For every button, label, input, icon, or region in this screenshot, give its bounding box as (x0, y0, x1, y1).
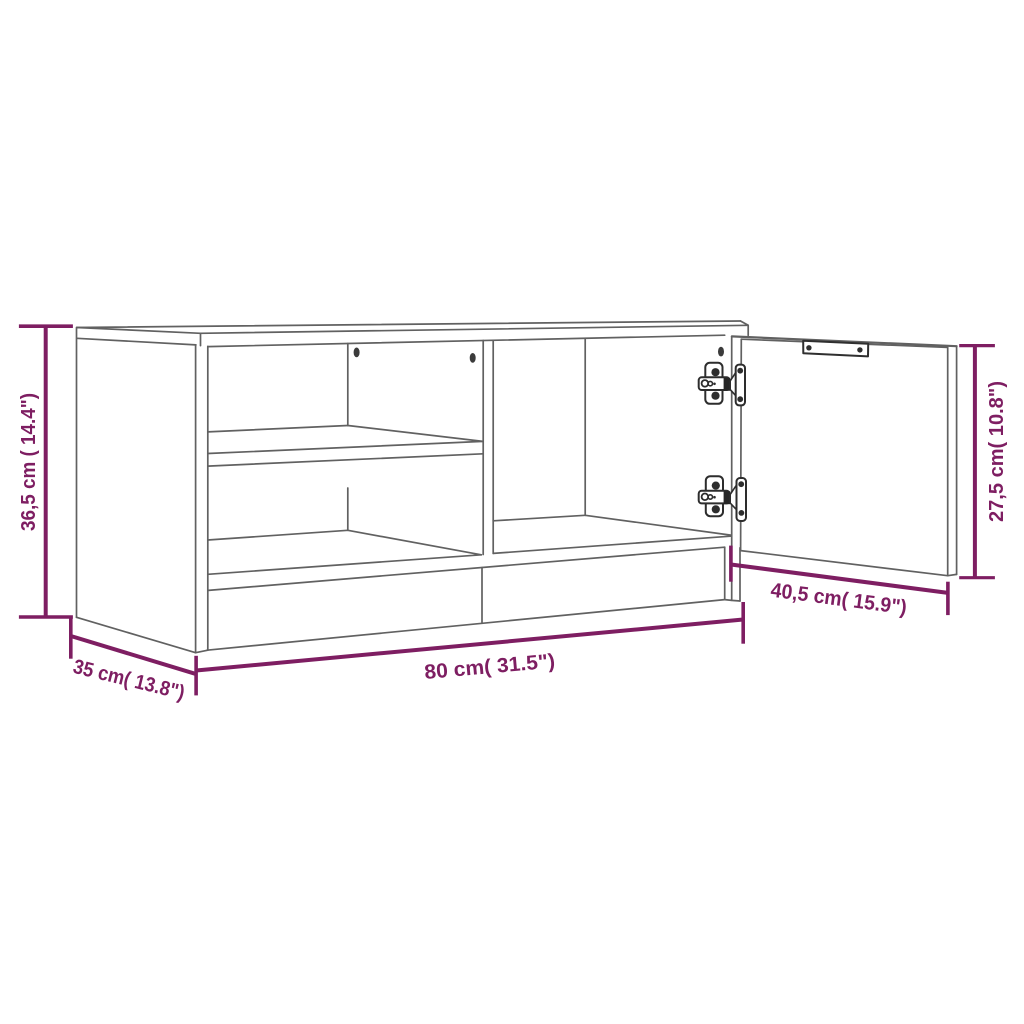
svg-text:27,5 cm( 10.8"): 27,5 cm( 10.8") (985, 381, 1008, 522)
svg-text:36,5 cm ( 14.4"): 36,5 cm ( 14.4") (17, 393, 40, 531)
